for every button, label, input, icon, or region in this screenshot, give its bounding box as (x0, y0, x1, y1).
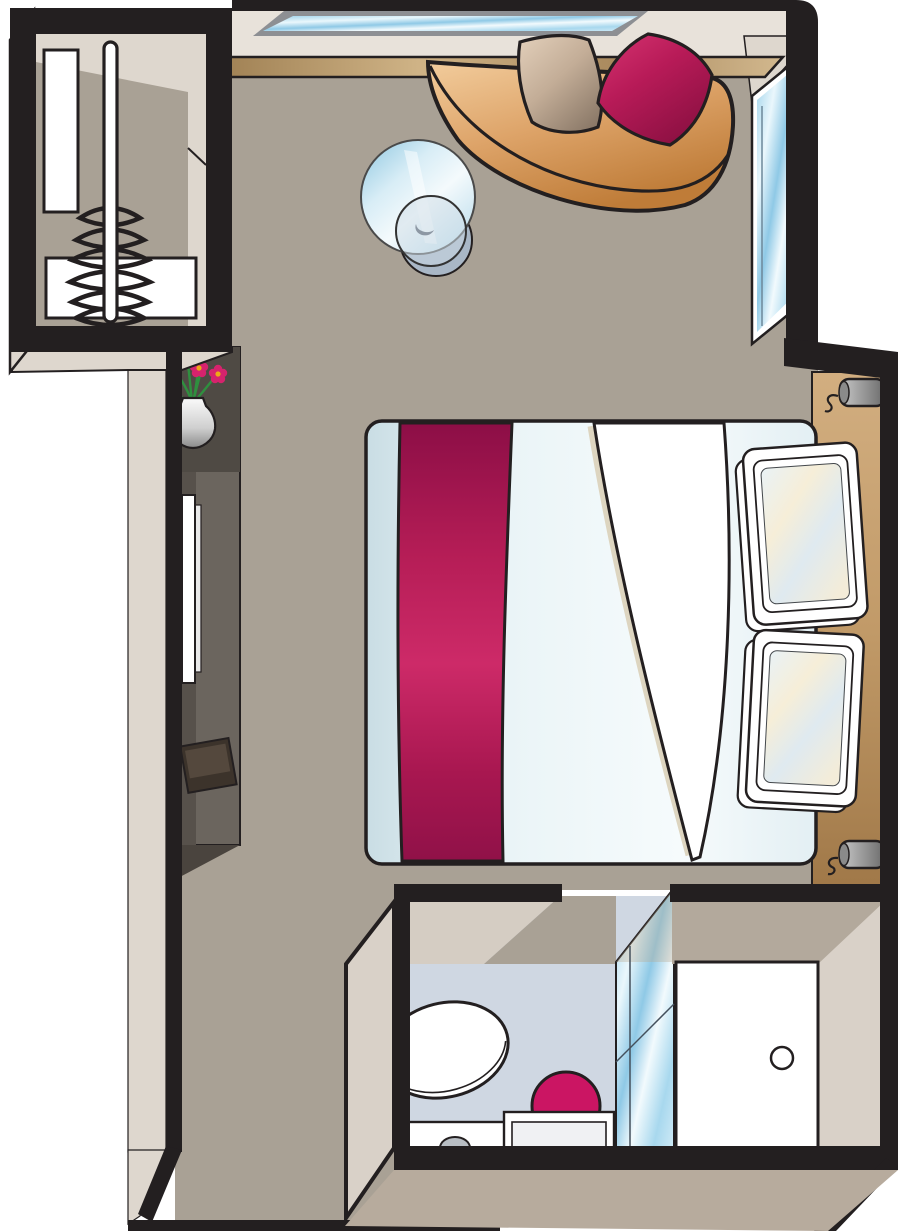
hanging-rail (104, 42, 117, 322)
bed-pillow-bottom (737, 629, 864, 813)
floor-plan (0, 0, 900, 1231)
desk-shelf-strip (182, 495, 195, 683)
closet (10, 8, 232, 352)
bottom-wall-face (345, 1170, 898, 1231)
closet-shelf-panel (44, 50, 78, 212)
door-knob (771, 1047, 793, 1069)
top-window-glass (263, 16, 638, 31)
cushion-tan (519, 36, 602, 133)
cabin-door (676, 962, 818, 1148)
stool (180, 738, 236, 793)
bed-pillow-top (734, 442, 868, 632)
table-base (396, 196, 466, 266)
bed-runner (398, 423, 512, 861)
